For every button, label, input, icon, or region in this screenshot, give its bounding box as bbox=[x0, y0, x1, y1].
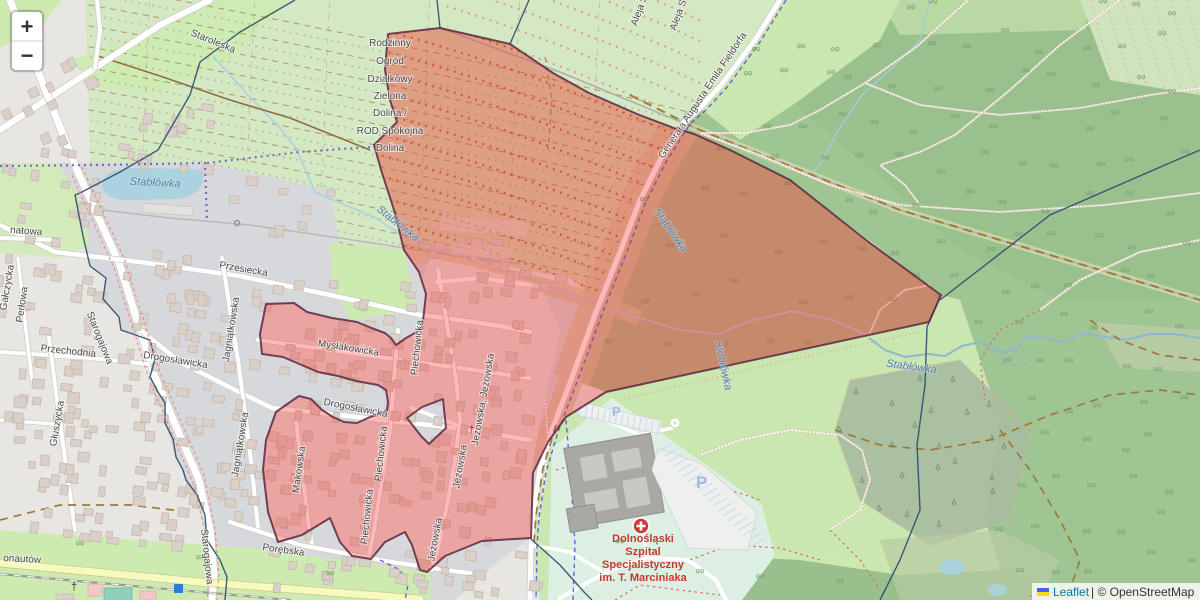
svg-text:†: † bbox=[71, 581, 77, 593]
svg-text:natowa: natowa bbox=[10, 225, 43, 238]
svg-text:+: + bbox=[21, 14, 34, 39]
svg-text:Dolina /: Dolina / bbox=[373, 108, 407, 119]
svg-text:Działkowy: Działkowy bbox=[367, 74, 412, 85]
svg-text:Szpital: Szpital bbox=[625, 546, 660, 558]
svg-text:P: P bbox=[612, 404, 621, 419]
svg-text:Ogród: Ogród bbox=[376, 56, 404, 67]
svg-text:Dolina: Dolina bbox=[376, 143, 405, 154]
svg-text:ROD Spokojna: ROD Spokojna bbox=[357, 126, 424, 137]
svg-text:| © OpenStreetMap: | © OpenStreetMap bbox=[1091, 585, 1195, 599]
svg-text:Dolnośląski: Dolnośląski bbox=[612, 533, 674, 545]
svg-text:Rodzinny: Rodzinny bbox=[369, 38, 411, 49]
svg-text:Zielona: Zielona bbox=[374, 91, 407, 102]
svg-text:Specjalistyczny: Specjalistyczny bbox=[602, 559, 685, 571]
svg-text:P: P bbox=[696, 473, 707, 492]
svg-text:−: − bbox=[21, 43, 34, 68]
svg-text:im. T. Marciniaka: im. T. Marciniaka bbox=[599, 572, 687, 584]
svg-text:onautów: onautów bbox=[3, 553, 42, 566]
svg-text:Leaflet: Leaflet bbox=[1053, 585, 1090, 599]
